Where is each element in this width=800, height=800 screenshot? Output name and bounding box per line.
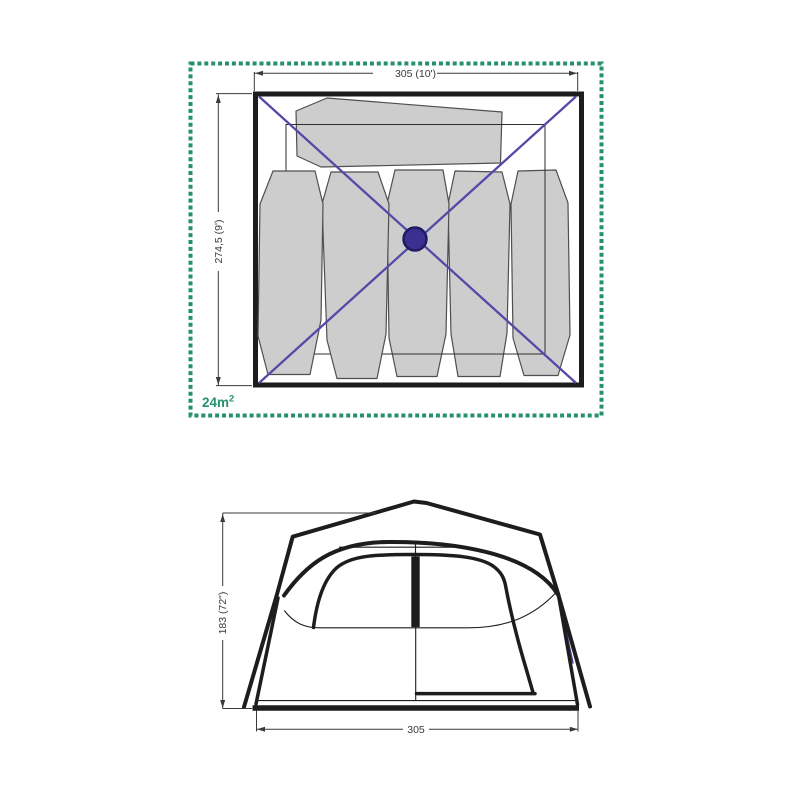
arrow-left-icon: [255, 71, 263, 76]
floor-width-dimension: 305 (10'): [254, 68, 577, 91]
arrow-up-icon: [216, 95, 221, 103]
tent-spec-diagram-page: 305 (10') 274,5 (9') 24m2: [0, 0, 800, 800]
floor-width-label: 305 (10'): [395, 68, 436, 80]
area-value: 24m: [202, 395, 229, 410]
arrow-left-icon: [257, 727, 265, 732]
sleeping-pad-1: [258, 171, 323, 375]
door-divider-bar: [411, 557, 419, 628]
floor-depth-label: 274,5 (9'): [213, 219, 225, 263]
arrow-up-icon: [220, 514, 225, 522]
arrow-right-icon: [570, 727, 578, 732]
height-dimension: 183 (72"): [217, 513, 376, 709]
arrow-right-icon: [569, 71, 577, 76]
sleeping-pad-3: [387, 170, 449, 377]
dimension-extension-lines: [223, 513, 376, 709]
area-superscript: 2: [229, 394, 234, 405]
sleeping-pad-4: [448, 171, 510, 377]
height-label: 183 (72"): [217, 592, 229, 635]
area-label: 24m2: [202, 394, 234, 411]
front-view-diagram: 183 (72") 305: [217, 502, 590, 737]
floor-depth-dimension: 274,5 (9'): [213, 94, 252, 386]
base-width-dimension: 305: [257, 711, 579, 737]
door-outline: [314, 555, 534, 693]
floor-plan-diagram: 305 (10') 274,5 (9') 24m2: [191, 64, 602, 416]
sleeping-pad-5: [511, 170, 570, 376]
center-hub: [404, 228, 427, 251]
arrow-down-icon: [220, 700, 225, 708]
diagram-canvas: 305 (10') 274,5 (9') 24m2: [0, 0, 800, 800]
base-width-label: 305: [407, 724, 425, 736]
arrow-down-icon: [216, 377, 221, 385]
